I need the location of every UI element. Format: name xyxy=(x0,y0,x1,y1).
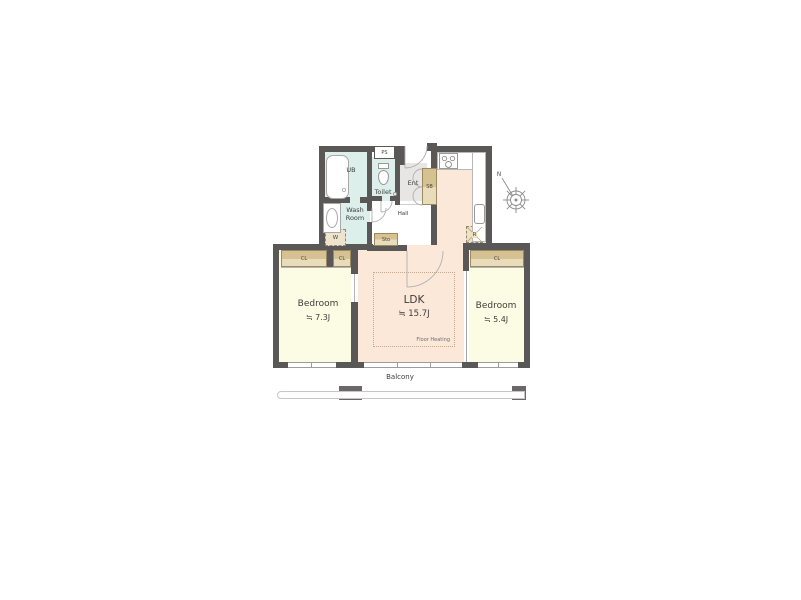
floor-plan: PS CL CL CL SB Sto W R xyxy=(0,0,801,600)
ldk-door-arc xyxy=(407,251,443,287)
room-size-bedroom-left: ≒ 7.3J xyxy=(282,313,354,322)
compass-north-label: N xyxy=(497,171,502,178)
room-size-ldk: ≒ 15.7J xyxy=(384,309,444,319)
room-label-toilet: Toilet xyxy=(369,189,397,197)
washroom-door-arc xyxy=(372,208,386,222)
room-label-bedroom-right: Bedroom xyxy=(468,301,524,312)
room-label-ldk: LDK xyxy=(384,294,444,306)
entrance-door-arc xyxy=(405,146,427,168)
room-label-ent: Ent xyxy=(400,180,426,188)
bathtub-drain xyxy=(342,188,345,191)
room-size-bedroom-right: ≒ 5.4J xyxy=(468,315,524,324)
floor-heating-label: Floor Heating xyxy=(408,338,452,344)
balcony-label: Balcony xyxy=(372,373,428,381)
compass-north-needle xyxy=(502,178,513,196)
compass-icon: N xyxy=(497,171,529,213)
balcony-rail xyxy=(277,391,525,399)
room-label-ub: UB xyxy=(340,167,362,175)
fridge-label: R xyxy=(472,232,478,238)
room-label-hall: Hall xyxy=(391,211,415,217)
room-label-bedroom-left: Bedroom xyxy=(282,299,354,310)
stove-burners-icon xyxy=(442,156,454,167)
room-label-wash-room: Wash Room xyxy=(338,207,372,222)
